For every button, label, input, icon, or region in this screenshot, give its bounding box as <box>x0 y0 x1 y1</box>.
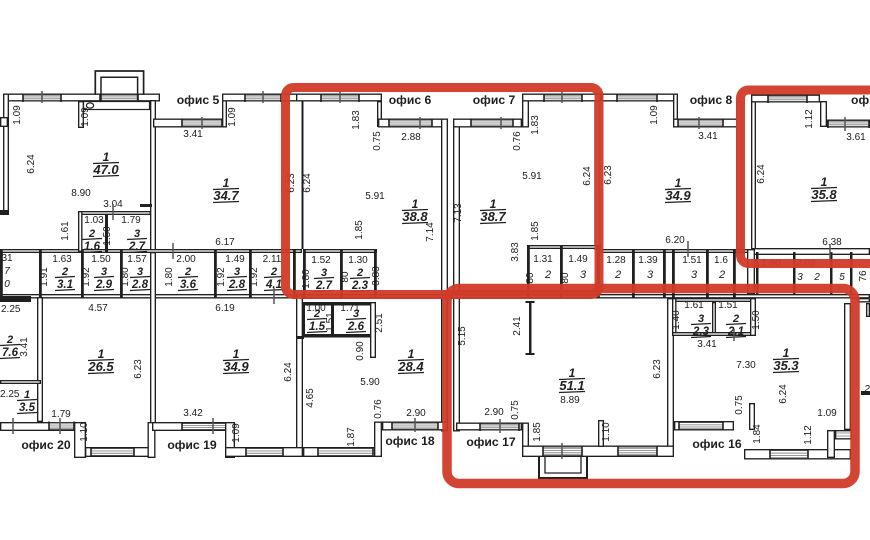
svg-text:2: 2 <box>718 269 725 281</box>
svg-text:5.90: 5.90 <box>360 377 380 388</box>
svg-text:6.24: 6.24 <box>26 154 37 174</box>
svg-text:6.20: 6.20 <box>665 235 685 246</box>
svg-text:8.89: 8.89 <box>560 395 580 406</box>
svg-text:2: 2 <box>356 267 363 279</box>
svg-text:35.8: 35.8 <box>811 187 837 202</box>
svg-text:2: 2 <box>61 266 68 278</box>
svg-text:6.24: 6.24 <box>302 173 313 193</box>
svg-text:80: 80 <box>340 271 351 283</box>
svg-text:1.51: 1.51 <box>325 312 336 332</box>
svg-text:1.85: 1.85 <box>530 221 541 241</box>
svg-text:1.09: 1.09 <box>80 107 91 127</box>
svg-text:2: 2 <box>813 272 820 283</box>
svg-text:3: 3 <box>580 269 587 281</box>
svg-text:7: 7 <box>4 266 10 277</box>
svg-text:1.57: 1.57 <box>127 254 147 265</box>
svg-text:4.57: 4.57 <box>88 303 108 314</box>
svg-text:80: 80 <box>525 272 536 284</box>
svg-text:4.65: 4.65 <box>305 388 316 408</box>
svg-text:2.00: 2.00 <box>176 254 196 265</box>
svg-text:2.88: 2.88 <box>401 132 421 143</box>
svg-text:6.17: 6.17 <box>215 237 235 248</box>
svg-text:1.39: 1.39 <box>638 255 658 266</box>
svg-text:6.24: 6.24 <box>582 166 593 186</box>
svg-text:1.92: 1.92 <box>249 267 260 287</box>
svg-text:3: 3 <box>321 267 327 279</box>
svg-text:офис 17: офис 17 <box>466 435 516 449</box>
svg-text:1.09: 1.09 <box>817 408 837 419</box>
svg-text:1.80: 1.80 <box>301 269 312 289</box>
svg-text:2: 2 <box>313 308 320 320</box>
svg-text:1.12: 1.12 <box>804 109 815 129</box>
svg-text:2.25: 2.25 <box>1 304 21 315</box>
svg-text:0.76: 0.76 <box>512 131 523 151</box>
svg-text:офис 16: офис 16 <box>692 437 742 451</box>
svg-text:47.0: 47.0 <box>92 162 119 177</box>
svg-text:1.91: 1.91 <box>39 267 50 287</box>
svg-text:51.1: 51.1 <box>559 378 584 393</box>
svg-text:3.41: 3.41 <box>183 129 203 140</box>
svg-text:офис 6: офис 6 <box>389 93 432 107</box>
svg-text:0.90: 0.90 <box>355 341 366 361</box>
svg-text:7.13: 7.13 <box>453 203 464 223</box>
svg-text:3.42: 3.42 <box>183 408 203 419</box>
svg-text:3.61: 3.61 <box>846 132 866 143</box>
svg-text:2.41: 2.41 <box>512 316 523 336</box>
svg-text:1.51: 1.51 <box>682 255 702 266</box>
svg-text:1.83: 1.83 <box>530 115 541 135</box>
svg-text:0.75: 0.75 <box>372 131 383 151</box>
svg-text:1.92: 1.92 <box>81 267 92 287</box>
svg-text:1.30: 1.30 <box>348 255 368 266</box>
svg-text:8.90: 8.90 <box>71 188 91 199</box>
svg-text:6.19: 6.19 <box>215 303 235 314</box>
svg-text:28.4: 28.4 <box>397 359 424 374</box>
svg-text:2: 2 <box>614 269 621 281</box>
svg-text:38.7: 38.7 <box>480 209 506 224</box>
svg-text:7.30: 7.30 <box>736 360 756 371</box>
svg-text:1.28: 1.28 <box>606 255 626 266</box>
svg-text:1.79: 1.79 <box>121 215 141 226</box>
svg-text:1.49: 1.49 <box>568 254 588 265</box>
svg-text:1.50: 1.50 <box>102 226 113 246</box>
svg-text:6.23: 6.23 <box>652 359 663 379</box>
svg-text:2: 2 <box>6 334 13 346</box>
svg-text:80: 80 <box>560 272 571 284</box>
svg-text:3.41: 3.41 <box>697 339 717 350</box>
svg-text:5.91: 5.91 <box>522 171 542 182</box>
svg-text:5.91: 5.91 <box>365 191 385 202</box>
svg-text:2.90: 2.90 <box>406 408 426 419</box>
svg-text:2.51: 2.51 <box>374 313 385 333</box>
svg-text:6.38: 6.38 <box>822 237 842 248</box>
svg-text:1.09: 1.09 <box>231 423 242 443</box>
svg-text:1.80: 1.80 <box>164 267 175 287</box>
svg-text:76: 76 <box>858 270 869 282</box>
svg-text:1.50: 1.50 <box>751 310 762 330</box>
svg-text:34.9: 34.9 <box>665 188 691 203</box>
svg-text:2.11: 2.11 <box>263 254 282 265</box>
svg-text:1.03: 1.03 <box>84 215 104 226</box>
svg-text:офис 7: офис 7 <box>473 93 516 107</box>
svg-text:26.5: 26.5 <box>87 359 114 374</box>
svg-text:1.92: 1.92 <box>216 267 227 287</box>
svg-text:35.3: 35.3 <box>773 358 799 373</box>
svg-text:1.09: 1.09 <box>649 105 660 125</box>
svg-text:1.84: 1.84 <box>752 424 763 444</box>
svg-text:3.83: 3.83 <box>510 242 521 262</box>
svg-text:2.25: 2.25 <box>0 389 20 400</box>
svg-text:1.61: 1.61 <box>60 221 71 241</box>
svg-text:0: 0 <box>4 279 10 290</box>
svg-text:2: 2 <box>544 269 551 281</box>
svg-text:1.49: 1.49 <box>225 254 245 265</box>
svg-text:5.15: 5.15 <box>457 326 468 346</box>
svg-text:1.6: 1.6 <box>714 255 728 266</box>
svg-text:3: 3 <box>797 272 803 283</box>
svg-text:0.75: 0.75 <box>510 400 521 420</box>
svg-text:офис 18: офис 18 <box>385 434 435 448</box>
svg-text:офис 8: офис 8 <box>690 93 733 107</box>
svg-text:1.61: 1.61 <box>684 300 704 311</box>
svg-text:6.23: 6.23 <box>603 165 614 185</box>
svg-text:1.09: 1.09 <box>12 105 23 125</box>
svg-text:3: 3 <box>698 313 704 325</box>
svg-text:2.90: 2.90 <box>484 407 504 418</box>
svg-text:6.24: 6.24 <box>756 164 767 184</box>
svg-text:1.80: 1.80 <box>120 267 131 287</box>
svg-text:1.79: 1.79 <box>51 409 71 420</box>
svg-text:3: 3 <box>137 266 143 278</box>
svg-text:3: 3 <box>647 269 654 281</box>
svg-text:6.24: 6.24 <box>778 384 789 404</box>
svg-text:1.85: 1.85 <box>354 220 365 240</box>
svg-text:0.76: 0.76 <box>373 399 384 419</box>
svg-text:3: 3 <box>101 266 107 278</box>
svg-text:1.50: 1.50 <box>91 254 111 265</box>
svg-text:1: 1 <box>24 389 30 401</box>
svg-text:6.23: 6.23 <box>133 359 144 379</box>
svg-text:2: 2 <box>184 266 191 278</box>
svg-text:2: 2 <box>270 266 277 278</box>
svg-text:1.09: 1.09 <box>227 107 238 127</box>
svg-text:офис 20: офис 20 <box>21 438 71 452</box>
svg-text:офис 5: офис 5 <box>177 93 220 107</box>
svg-text:офис 9: офис 9 <box>851 93 870 107</box>
svg-text:1.87: 1.87 <box>346 427 357 447</box>
svg-text:1.10: 1.10 <box>79 422 90 442</box>
svg-text:2: 2 <box>732 313 739 325</box>
svg-text:3.41: 3.41 <box>698 131 718 142</box>
svg-text:3: 3 <box>691 269 698 281</box>
svg-text:1.40: 1.40 <box>671 310 682 330</box>
svg-text:0.75: 0.75 <box>734 395 745 415</box>
svg-text:офис 19: офис 19 <box>167 438 217 452</box>
svg-text:1.10: 1.10 <box>601 422 612 442</box>
svg-text:6.24: 6.24 <box>283 362 294 382</box>
svg-text:31: 31 <box>1 253 13 264</box>
svg-text:2: 2 <box>88 228 95 240</box>
svg-text:3.41: 3.41 <box>19 337 30 357</box>
svg-text:3: 3 <box>353 308 359 320</box>
svg-text:1.85: 1.85 <box>532 422 543 442</box>
svg-text:1.83: 1.83 <box>351 110 362 130</box>
svg-text:3: 3 <box>234 266 240 278</box>
svg-text:1.12: 1.12 <box>803 425 814 445</box>
svg-text:3: 3 <box>134 228 140 240</box>
svg-text:3.83: 3.83 <box>371 266 382 286</box>
svg-text:7.14: 7.14 <box>425 222 436 242</box>
svg-text:34.9: 34.9 <box>223 359 249 374</box>
svg-text:2: 2 <box>863 384 870 395</box>
svg-text:5: 5 <box>839 272 845 283</box>
svg-text:1.52: 1.52 <box>311 255 331 266</box>
svg-text:1.63: 1.63 <box>52 254 72 265</box>
svg-text:1.51: 1.51 <box>718 300 738 311</box>
svg-text:1.31: 1.31 <box>533 254 553 265</box>
svg-text:38.8: 38.8 <box>402 209 428 224</box>
svg-text:34.7: 34.7 <box>213 188 239 203</box>
